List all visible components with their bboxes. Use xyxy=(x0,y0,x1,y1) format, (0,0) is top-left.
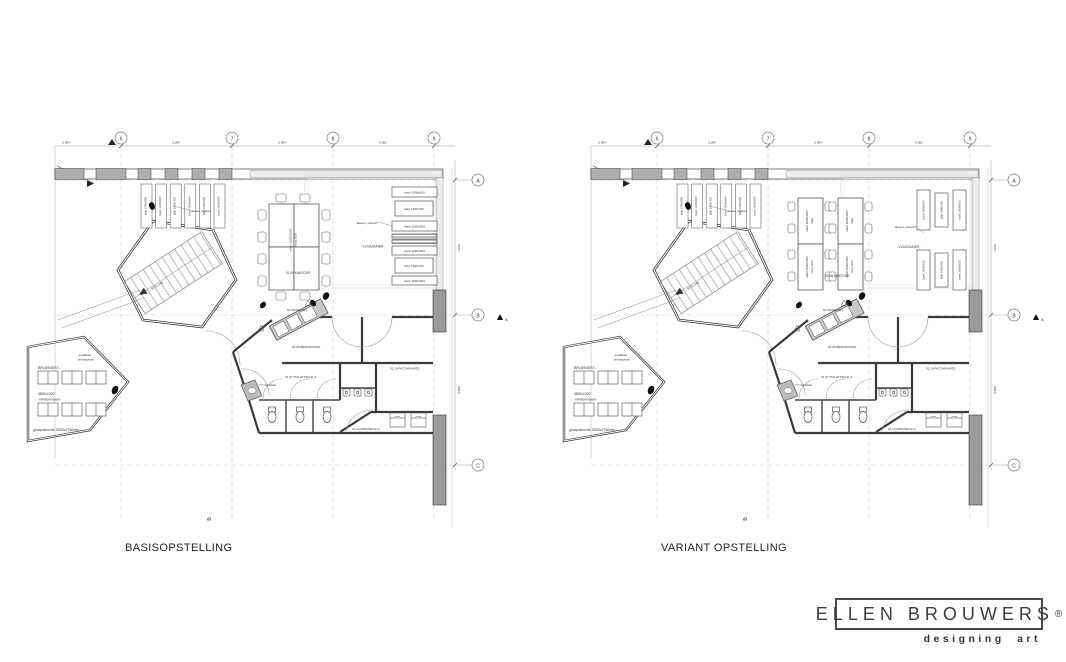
logo-box: ELLEN BROUWERS® xyxy=(835,598,1043,630)
plan-basis-furniture xyxy=(258,187,437,300)
plan-variant-furniture xyxy=(788,190,966,290)
logo-brand: ELLEN BROUWERS xyxy=(816,604,1054,625)
logo-tagline: designing art xyxy=(835,633,1043,645)
drawing-sheet: 6 7 8 9 5.000 5.000 5.000 5.000 A B C xyxy=(0,0,1066,662)
plan-title-variant: VARIANT OPSTELLING xyxy=(661,542,787,554)
registered-mark: ® xyxy=(1055,609,1062,620)
floor-plan-basis: BASISOPSTELLING xyxy=(25,125,525,540)
company-logo: ELLEN BROUWERS® designing art xyxy=(835,598,1043,645)
floor-plan-variant: VARIANT OPSTELLING xyxy=(561,125,1061,540)
plan-title-basis: BASISOPSTELLING xyxy=(125,542,232,554)
plan-drawing xyxy=(564,132,1044,528)
